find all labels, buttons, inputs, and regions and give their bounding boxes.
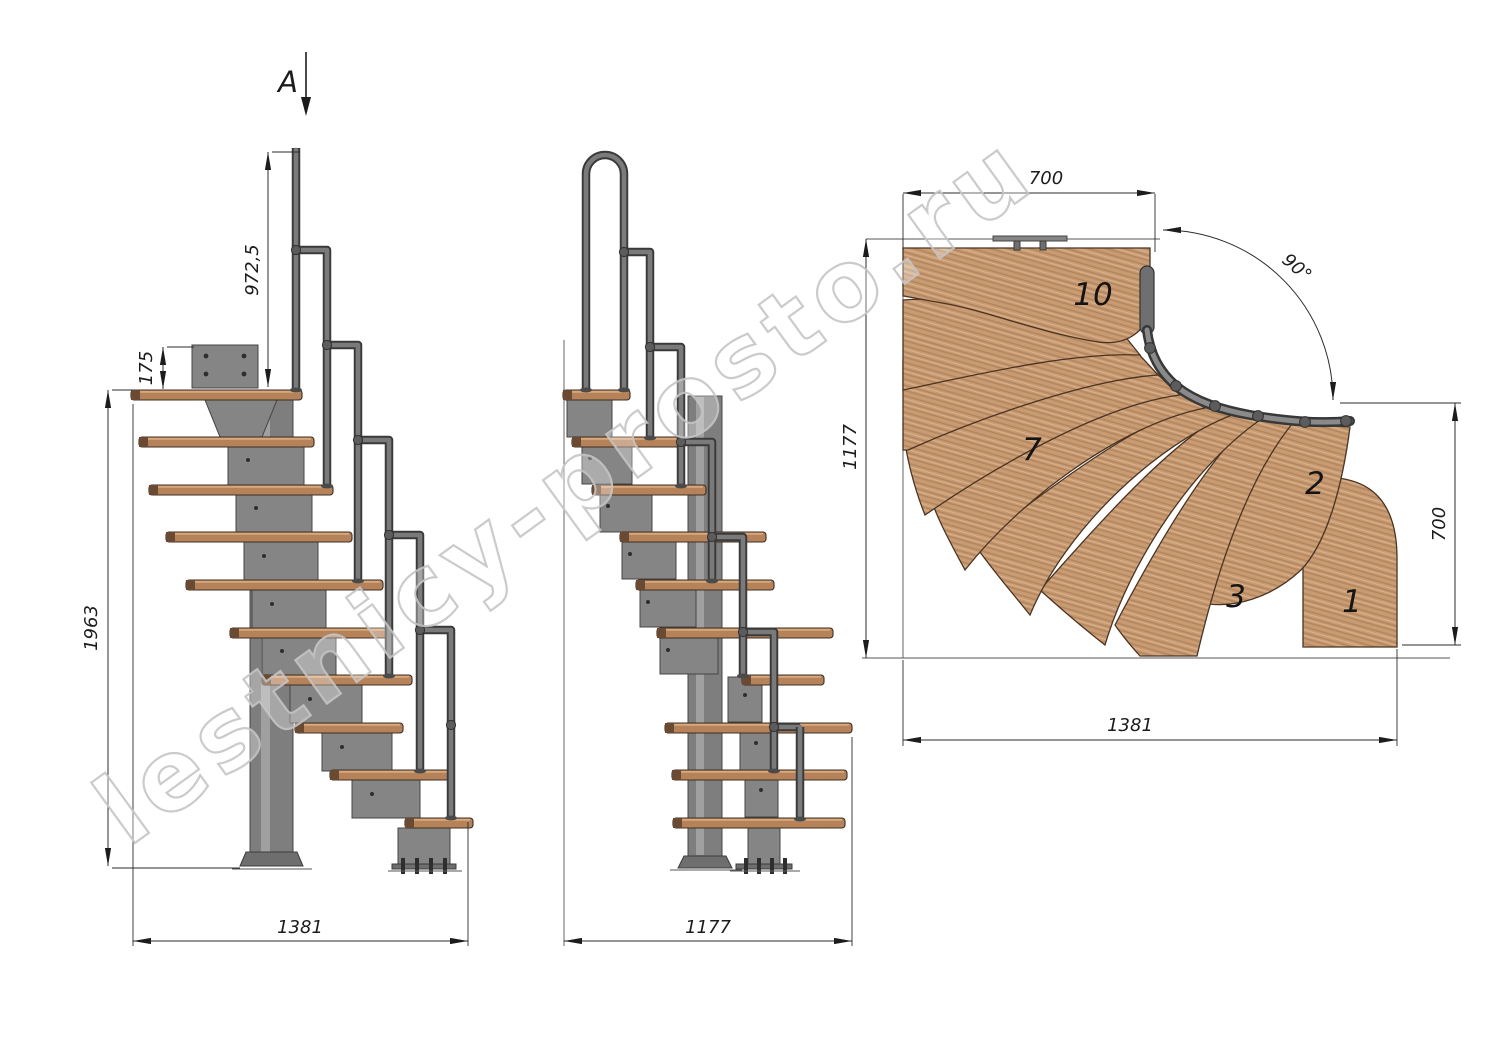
anchor-bolt <box>415 858 419 874</box>
column-foot <box>678 856 732 868</box>
rail-collar <box>769 722 778 731</box>
post-base <box>706 579 718 584</box>
step-plank <box>166 532 352 542</box>
dim-total-height: 1963 <box>81 605 102 651</box>
module-bolt <box>628 552 632 556</box>
anchor-bolt <box>744 858 748 874</box>
dim-side-length: 1381 <box>277 917 323 938</box>
rail-joint <box>1253 411 1264 422</box>
dim-front-length: 1177 <box>685 917 731 938</box>
drawing-canvas: A <box>0 0 1500 1061</box>
step-module <box>228 447 304 485</box>
plate-bolt <box>204 354 209 359</box>
plate-bolt <box>242 354 247 359</box>
step-plank <box>742 675 824 685</box>
step-plank <box>330 770 453 780</box>
anchor-bolt <box>443 858 447 874</box>
module-bolt <box>759 788 763 792</box>
dim-right-depth: 700 <box>1429 507 1450 541</box>
step-module <box>236 495 312 533</box>
dim-plate-offset: 175 <box>136 351 157 385</box>
dim-turn-angle: 90° <box>1278 249 1316 286</box>
step-module <box>640 589 696 627</box>
rail-joint <box>1341 416 1352 427</box>
dim-handrail-height: 972,5 <box>242 244 263 296</box>
module-bolt <box>270 602 274 606</box>
step-module <box>660 637 718 674</box>
rail-collar <box>446 720 455 729</box>
post-base <box>290 388 302 393</box>
dim-left-depth: 1177 <box>840 424 861 470</box>
step-module <box>352 780 420 818</box>
step-number-1: 1 <box>1342 584 1362 620</box>
anchor-bolt <box>757 858 761 874</box>
rail-joint <box>1145 343 1156 354</box>
module-bolt <box>340 745 344 749</box>
rail-collar <box>384 530 393 539</box>
section-arrow-head <box>301 97 311 116</box>
rail-collar <box>707 532 716 541</box>
center-column-highlight <box>696 397 704 855</box>
rail-joint <box>1300 417 1311 428</box>
step-module <box>622 541 676 579</box>
post-base <box>445 816 457 821</box>
bracket-tab <box>1014 241 1020 250</box>
step-module <box>322 733 392 771</box>
step-module <box>244 542 318 580</box>
anchor-bolt <box>783 858 787 874</box>
rail-collar <box>291 245 300 254</box>
post-base <box>414 769 426 774</box>
step-plank <box>139 437 314 447</box>
step-number-3: 3 <box>1226 579 1246 615</box>
staircase-technical-drawing: A <box>0 0 1500 1061</box>
rail-collar <box>645 342 654 351</box>
module-bolt <box>666 648 670 652</box>
module-bolt <box>262 554 266 558</box>
step-plank <box>636 580 774 590</box>
step-plank <box>405 818 473 828</box>
anchor-bolt <box>770 858 774 874</box>
module-bolt <box>743 693 747 697</box>
post-base <box>321 484 333 489</box>
post-base <box>768 769 780 774</box>
section-label: A <box>276 65 298 99</box>
dim-turn-angle-arc <box>1163 230 1333 400</box>
plate-bolt <box>242 372 247 377</box>
wall-plate <box>192 345 258 388</box>
rail-collar <box>619 247 628 256</box>
module-bolt <box>754 741 758 745</box>
module-bolt <box>646 600 650 604</box>
module-bolt <box>246 458 250 462</box>
rail-joint <box>1171 381 1182 392</box>
post-base <box>675 484 687 489</box>
step-plank <box>149 485 333 495</box>
anchor-bolt <box>401 858 405 874</box>
step-plank <box>131 390 302 400</box>
rail-collar <box>353 435 362 444</box>
step-plank <box>673 818 845 828</box>
anchor-bolt <box>429 858 433 874</box>
post-base <box>794 817 806 822</box>
handrail-loop-tube <box>586 155 624 388</box>
post-base <box>737 674 749 679</box>
plate-bolt <box>204 372 209 377</box>
module-bolt <box>370 792 374 796</box>
section-marker: A <box>276 52 311 116</box>
handrail-post-top <box>1140 266 1154 334</box>
step-number-10: 10 <box>1073 277 1112 313</box>
column-foot <box>240 852 303 866</box>
rail-collar <box>738 627 747 636</box>
module-bolt <box>254 506 258 510</box>
step-plank <box>665 723 852 733</box>
rail-collar <box>322 340 331 349</box>
step-number-2: 2 <box>1305 466 1325 502</box>
step-plank <box>672 770 847 780</box>
post-base <box>580 388 592 393</box>
foot-module <box>398 828 450 866</box>
handrail-loop <box>586 155 624 390</box>
dim-total-length: 1381 <box>1107 715 1153 736</box>
rail-joint <box>1210 401 1221 412</box>
step-number-7: 7 <box>1022 432 1042 468</box>
bracket-tab <box>1040 241 1046 250</box>
